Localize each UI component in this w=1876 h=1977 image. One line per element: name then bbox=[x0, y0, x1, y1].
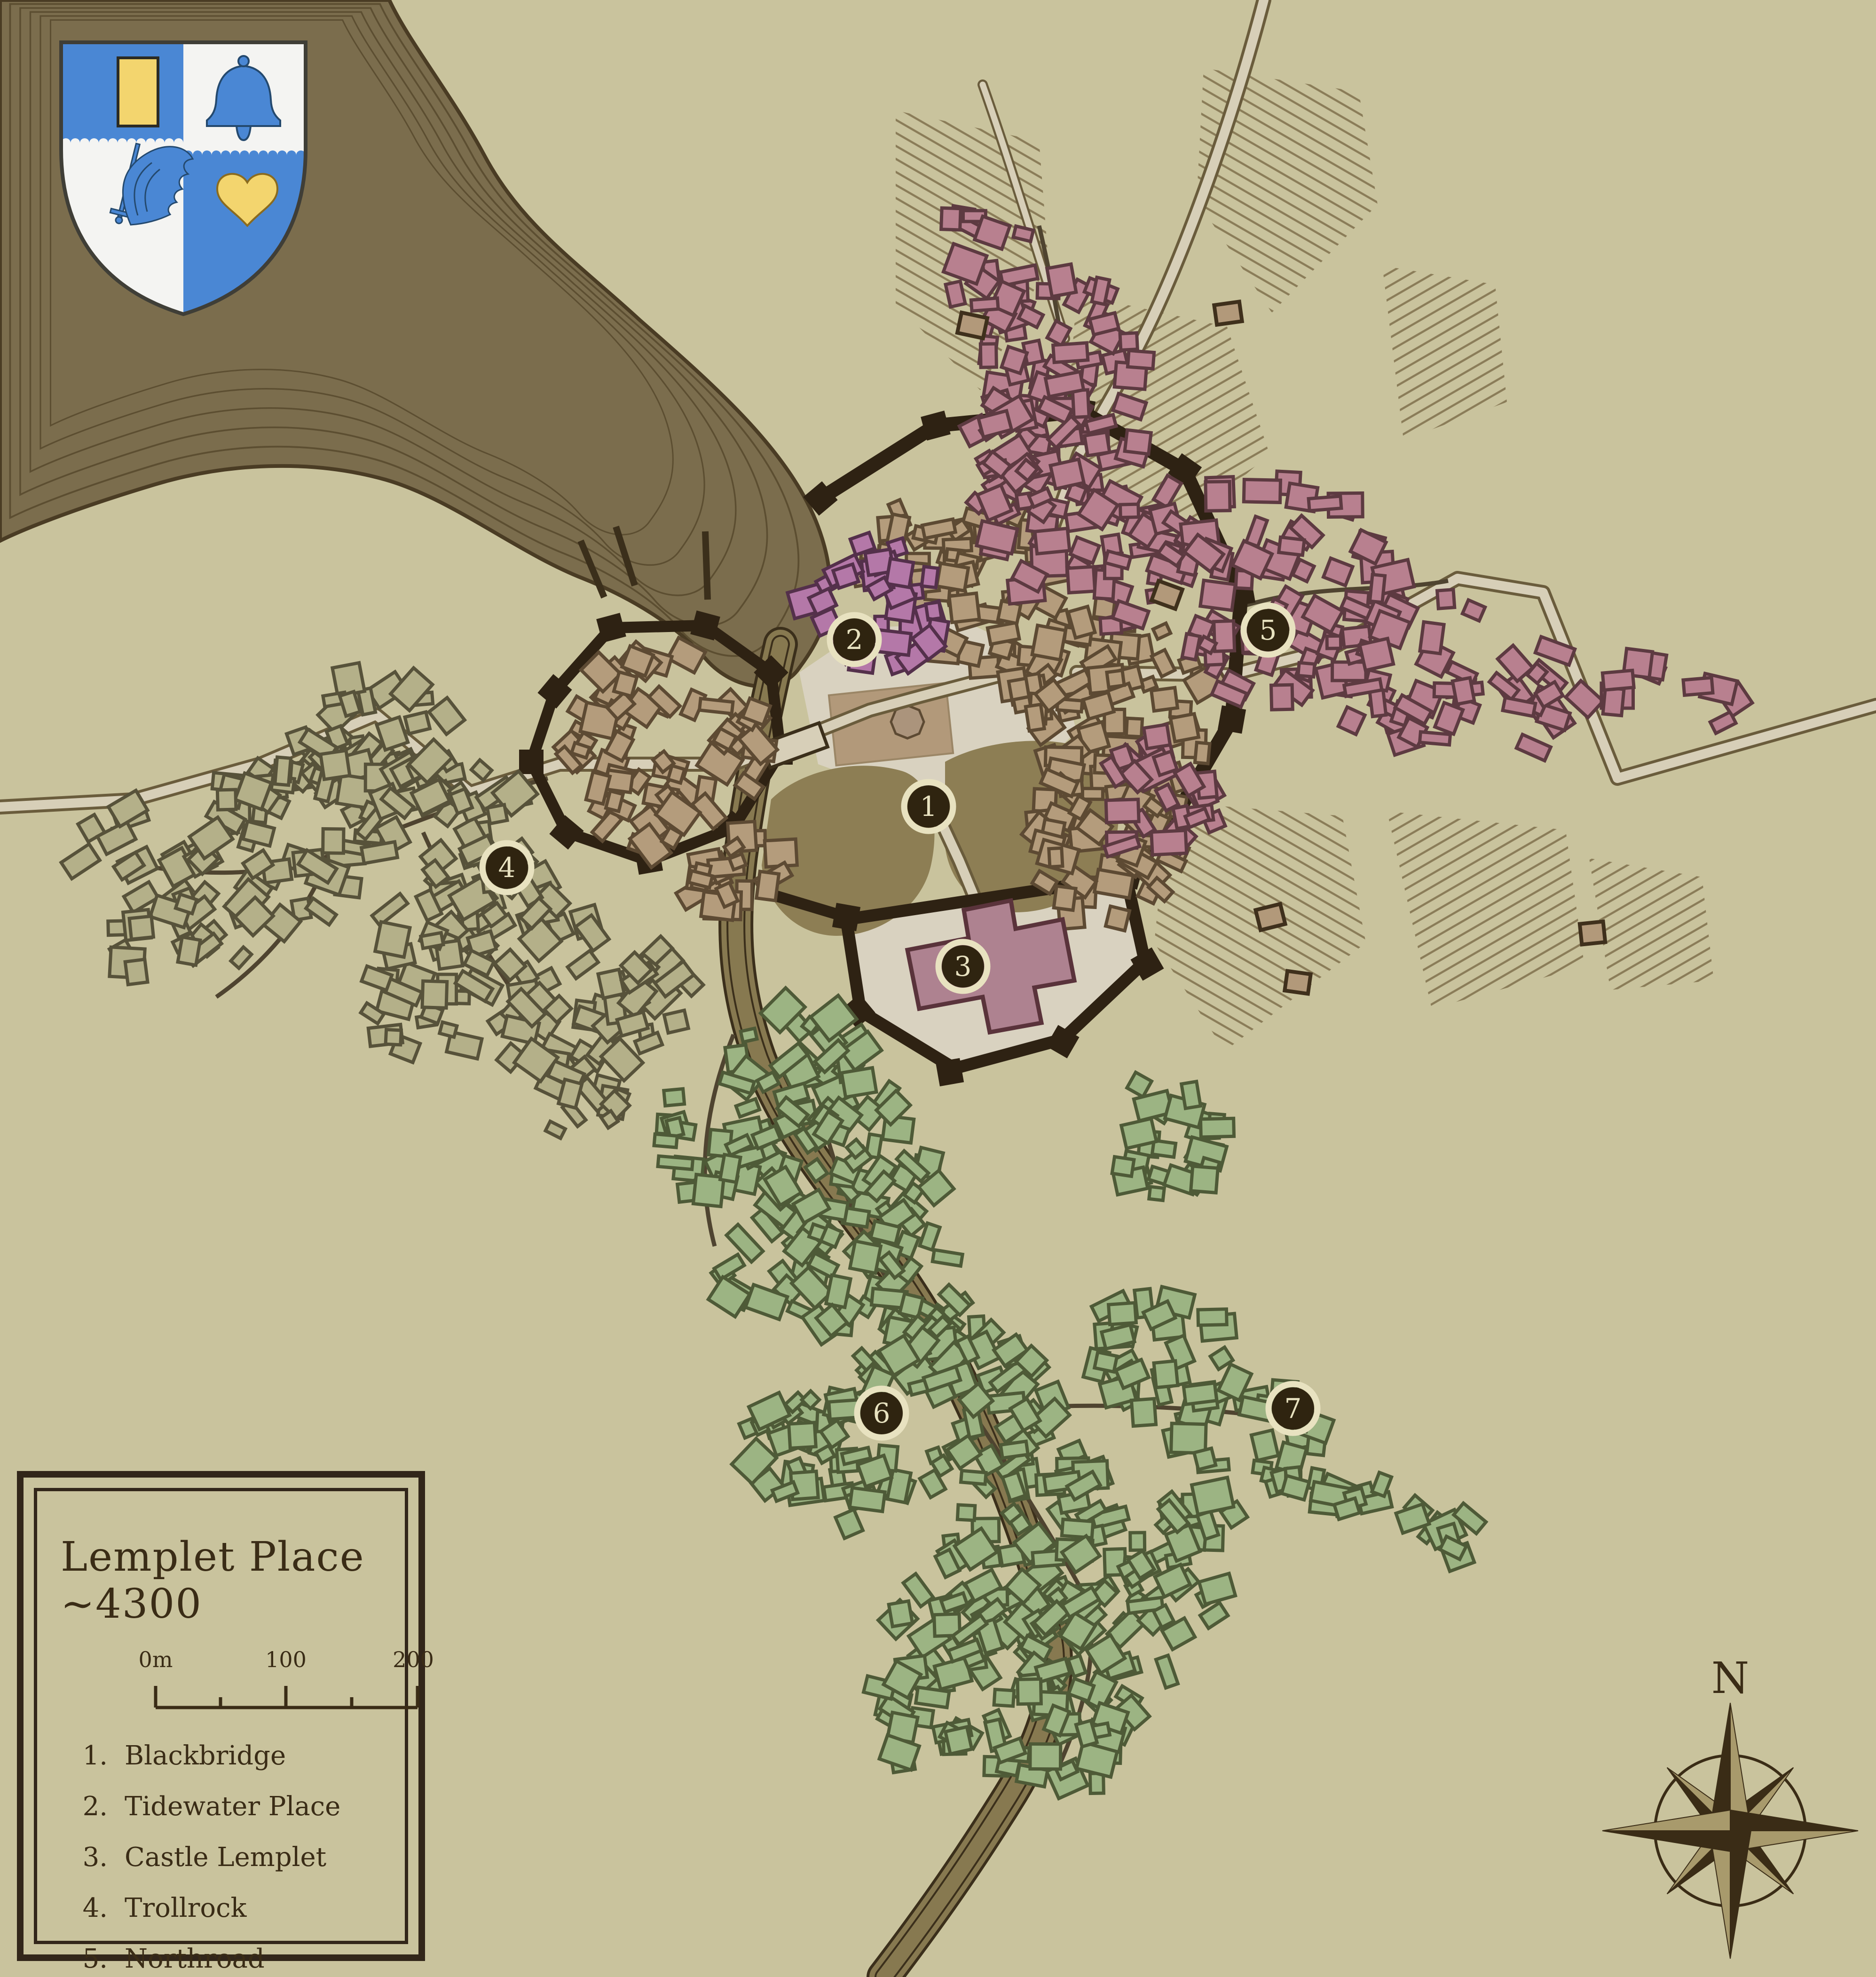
map-title: Lemplet Place ~4300 bbox=[61, 1534, 386, 1628]
legend-item-3: 3.Castle Lemplet bbox=[56, 1842, 386, 1873]
marker-3[interactable]: 3 bbox=[938, 942, 987, 991]
compass-north-label: N bbox=[1711, 1653, 1750, 1703]
marker-number: 3 bbox=[954, 950, 972, 982]
marker-number: 1 bbox=[920, 791, 938, 822]
scale-bar-ticks bbox=[156, 1686, 418, 1708]
legend-item-5: 5.Northroad bbox=[56, 1944, 386, 1974]
marker-number: 6 bbox=[873, 1397, 891, 1429]
marker-number: 5 bbox=[1260, 614, 1277, 646]
legend-item-1: 1.Blackbridge bbox=[56, 1740, 386, 1771]
marker-number: 2 bbox=[846, 624, 863, 656]
marker-1[interactable]: 1 bbox=[904, 782, 953, 831]
scale-bar: 0m 100 200 bbox=[84, 1646, 441, 1717]
legend-item-2: 2.Tidewater Place bbox=[56, 1791, 386, 1822]
marker-number: 7 bbox=[1285, 1392, 1302, 1424]
legend-item-4: 4.Trollrock bbox=[56, 1893, 386, 1923]
legend-box: Lemplet Place ~4300 0m 100 200 1.Blackbr… bbox=[17, 1471, 425, 1961]
scale-0: 0m bbox=[139, 1647, 173, 1672]
scale-200: 200 bbox=[393, 1647, 434, 1672]
billet-charge bbox=[118, 58, 158, 126]
marker-2[interactable]: 2 bbox=[830, 615, 879, 664]
marker-6[interactable]: 6 bbox=[857, 1389, 906, 1438]
marker-4[interactable]: 4 bbox=[482, 843, 531, 892]
scale-100: 100 bbox=[265, 1647, 307, 1672]
legend-list: 1.Blackbridge 2.Tidewater Place 3.Castle… bbox=[56, 1740, 386, 1977]
marker-5[interactable]: 5 bbox=[1244, 606, 1293, 655]
marker-7[interactable]: 7 bbox=[1269, 1384, 1317, 1433]
marker-number: 4 bbox=[498, 852, 516, 884]
map-page: 1234567 N bbox=[0, 0, 1876, 1977]
